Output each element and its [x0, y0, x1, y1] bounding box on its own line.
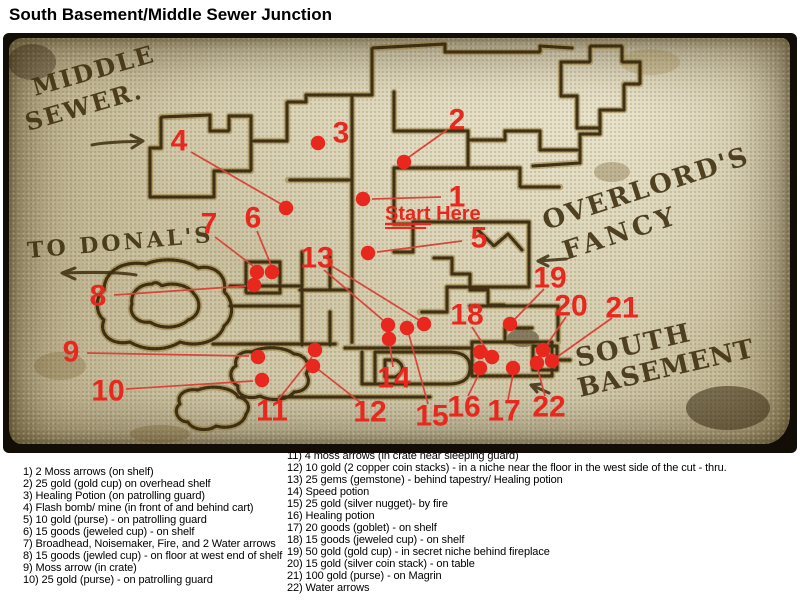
marker-2-dot-icon — [397, 155, 411, 169]
marker-16-number: 16 — [447, 391, 480, 424]
marker-9-dot-icon — [251, 350, 265, 364]
marker-10-dot-icon — [255, 373, 269, 387]
marker-17-number: 17 — [487, 395, 520, 428]
marker-13-number: 13 — [300, 242, 333, 275]
start-here-group: Start Here — [385, 203, 481, 228]
legend-item: 1) 2 Moss arrows (on shelf) — [23, 466, 282, 478]
legend-item: 5) 10 gold (purse) - on patrolling guard — [23, 514, 282, 526]
marker-21-dot-icon — [545, 354, 559, 368]
legend-item: 22) Water arrows — [287, 582, 727, 594]
marker-1-leader-line — [372, 197, 441, 199]
marker-4-dot-icon — [279, 201, 293, 215]
marker-6-dot-icon — [265, 265, 279, 279]
legend-item: 3) Healing Potion (on patrolling guard) — [23, 490, 282, 502]
legend-item: 19) 50 gold (gold cup) - in secret niche… — [287, 546, 727, 558]
label-to-donals: TO DONAL'S — [26, 222, 214, 264]
marker-15-dot-icon — [400, 321, 414, 335]
legend-item: 21) 100 gold (purse) - on Magrin — [287, 570, 727, 582]
marker-11-number: 11 — [256, 395, 288, 428]
marker-22-number: 22 — [532, 391, 565, 424]
marker-10-number: 10 — [91, 375, 124, 408]
marker-14-dot-icon — [382, 332, 396, 346]
legend-item: 16) Healing potion — [287, 510, 727, 522]
legend-item: 4) Flash bomb/ mine (in front of and beh… — [23, 502, 282, 514]
marker-7-number: 7 — [201, 208, 218, 241]
legend-item: 2) 25 gold (gold cup) on overhead shelf — [23, 478, 282, 490]
marker-2-number: 2 — [449, 104, 466, 137]
marker-6-number: 6 — [245, 202, 262, 235]
marker-8-dot-icon — [247, 278, 261, 292]
marker-17-dot-icon — [506, 361, 520, 375]
legend-item: 9) Moss arrow (in crate) — [23, 562, 282, 574]
legend-item: 7) Broadhead, Noisemaker, Fire, and 2 Wa… — [23, 538, 282, 550]
marker-4-number: 4 — [171, 125, 188, 158]
marker-19-dot-icon — [503, 317, 517, 331]
marker-11-dot-icon — [308, 343, 322, 357]
legend-left-column: 1) 2 Moss arrows (on shelf)2) 25 gold (g… — [23, 466, 282, 586]
legend-item: 12) 10 gold (2 copper coin stacks) - in … — [287, 462, 727, 474]
marker-16-dot-icon — [473, 361, 487, 375]
start-here-label: Start Here — [385, 203, 481, 225]
map-page: South Basement/Middle Sewer Junction MID… — [0, 0, 800, 600]
legend-item: 20) 15 gold (silver coin stack) - on tab… — [287, 558, 727, 570]
marker-12-dot-icon — [306, 359, 320, 373]
marker-1-number: 1 — [449, 181, 466, 214]
legend-item: 11) 4 moss arrows (in crate near sleepin… — [287, 450, 727, 462]
marker-20-number: 20 — [554, 290, 587, 323]
to-donals-arrow-icon — [62, 268, 136, 279]
marker-8-number: 8 — [90, 280, 107, 313]
legend-item: 8) 15 goods (jewled cup) - on floor at w… — [23, 550, 282, 562]
stain-blot — [686, 386, 770, 430]
marker-5-leader-line — [377, 241, 462, 252]
stain-blot — [130, 425, 190, 443]
marker-18-dot-icon — [485, 350, 499, 364]
legend-item: 17) 20 goods (goblet) - on shelf — [287, 522, 727, 534]
marker-14-number: 14 — [377, 362, 411, 395]
marker-13-dot-icon — [417, 317, 431, 331]
legend-item: 15) 25 gold (silver nugget)- by fire — [287, 498, 727, 510]
marker-12-number: 12 — [353, 396, 386, 429]
legend-item: 18) 15 goods (jeweled cup) - on shelf — [287, 534, 727, 546]
marker-22-dot-icon — [530, 356, 544, 370]
middle-sewer-arrow-icon — [92, 135, 143, 148]
marker-5-dot-icon — [361, 246, 375, 260]
marker-9-number: 9 — [63, 336, 80, 369]
stain-blot — [594, 162, 630, 182]
marker-21-number: 21 — [605, 292, 638, 325]
marker-13-dot-icon — [381, 318, 395, 332]
marker-18-number: 18 — [450, 299, 483, 332]
marker-5-number: 5 — [471, 222, 488, 255]
legend-item: 14) Speed potion — [287, 486, 727, 498]
marker-7-leader-line — [215, 237, 253, 266]
marker-1-dot-icon — [356, 192, 370, 206]
legend-item: 6) 15 goods (jeweled cup) - on shelf — [23, 526, 282, 538]
marker-7-dot-icon — [250, 265, 264, 279]
marker-9-leader-line — [87, 353, 249, 356]
legend-right-column: 11) 4 moss arrows (in crate near sleepin… — [287, 450, 727, 594]
legend-item: 10) 25 gold (purse) - on patrolling guar… — [23, 574, 282, 586]
marker-15-number: 15 — [415, 400, 448, 433]
marker-3-dot-icon — [311, 136, 325, 150]
legend-item: 13) 25 gems (gemstone) - behind tapestry… — [287, 474, 727, 486]
marker-3-number: 3 — [333, 117, 350, 150]
